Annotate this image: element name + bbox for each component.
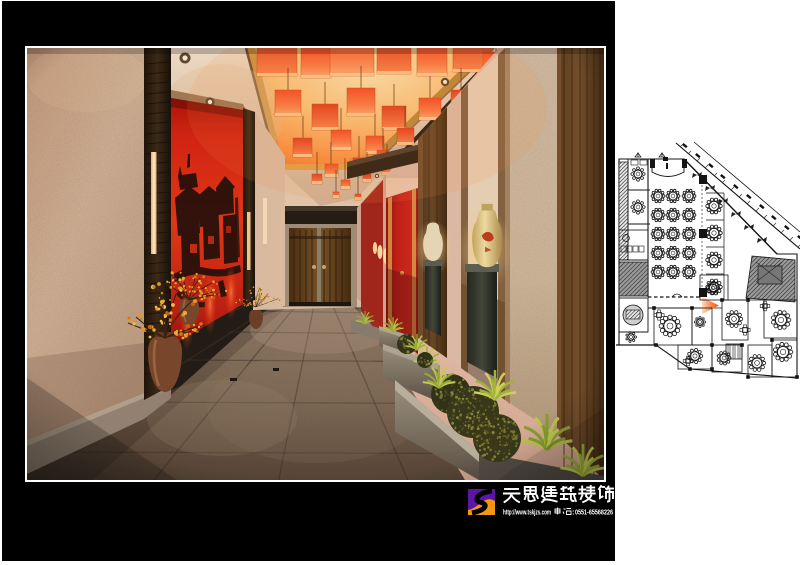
svg-text:0551-65568226: 0551-65568226	[575, 508, 613, 517]
svg-text:http://www.tskjzs.com: http://www.tskjzs.com	[503, 508, 551, 517]
